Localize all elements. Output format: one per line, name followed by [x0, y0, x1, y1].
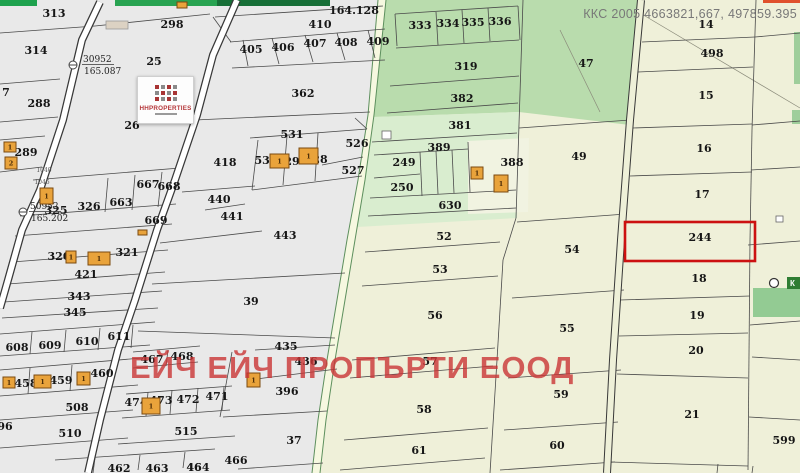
parcel-label: 531: [281, 128, 304, 141]
watermark-text: ЕЙЧ ЕЙЧ ПРОПЪРТИ ЕООД: [130, 350, 574, 386]
parcel-label: 336: [489, 15, 512, 28]
parcel-label: 526: [346, 137, 369, 150]
building-number: 1: [149, 403, 154, 411]
parcel-label: 335: [462, 16, 485, 29]
parcel-label: 443: [274, 229, 297, 242]
parcel-label: 409: [367, 35, 390, 48]
parcel-label: 334: [437, 17, 460, 30]
parcel-label: 321: [116, 246, 139, 259]
parcel-label: 58: [416, 403, 432, 416]
parcel-label: 396: [276, 385, 299, 398]
building-icon: [138, 230, 147, 235]
parcel-label: 667: [137, 178, 160, 191]
parcel-label: 408: [335, 36, 358, 49]
zone-patch: [753, 288, 800, 317]
road-label: 1040: [36, 167, 51, 174]
building-number: 1: [40, 378, 45, 386]
parcel-label: 53: [432, 263, 447, 276]
parcel-label: 389: [428, 141, 451, 154]
parcel-label: 39: [243, 295, 258, 308]
point-marker-icon: [770, 279, 779, 288]
parcel-label: 406: [272, 41, 295, 54]
parcel-label: 441: [221, 210, 244, 223]
parcel-label: 37: [286, 434, 301, 447]
building-number: 1: [81, 375, 86, 383]
road-label: 1046: [34, 179, 49, 186]
survey-point-number: 30952: [83, 55, 112, 65]
parcel-label: 418: [214, 156, 237, 169]
parcel-label: 343: [68, 290, 91, 303]
parcel-label: 47: [578, 57, 593, 70]
logo-subtitle-bar: [155, 113, 177, 115]
parcel-label: 362: [292, 87, 315, 100]
building-number: 1: [499, 180, 504, 188]
parcel-label: 249: [393, 156, 416, 169]
parcel-label: 17: [694, 188, 709, 201]
parcel-label: 20: [688, 344, 704, 357]
parcel-label: 471: [206, 390, 229, 403]
survey-point-elevation: 165.087: [84, 67, 121, 77]
parcel-label: 56: [427, 309, 443, 322]
logo-box: HHPROPERTIES: [137, 76, 194, 124]
parcel-label: 59: [553, 388, 568, 401]
parcel-label: 21: [684, 408, 699, 421]
parcel-label: 55: [559, 322, 574, 335]
parcel-label: 510: [59, 427, 82, 440]
parcel-label: 405: [240, 43, 263, 56]
parcel-label: 498: [701, 47, 724, 60]
parcel-label-244: 244: [689, 231, 712, 244]
parcel-label: 19: [689, 309, 704, 322]
parcel-label: 46: [186, 461, 202, 473]
parcel-label: 61: [411, 444, 426, 457]
parcel-label: 472: [177, 393, 200, 406]
zone-patch: [0, 0, 37, 6]
parcel-label: 608: [6, 341, 29, 354]
parcel-label: 508: [66, 401, 89, 414]
parcel-label: 25: [146, 55, 161, 68]
survey-point-elevation: 165.202: [31, 214, 68, 224]
building-icon: [177, 2, 187, 8]
parcel-label: 288: [28, 97, 51, 110]
parcel-label: 421: [75, 268, 98, 281]
parcel-label: 463: [146, 462, 169, 473]
parcel-label: 407: [304, 37, 327, 50]
parcel-label: 96: [0, 420, 13, 433]
parcel-label: 515: [175, 425, 198, 438]
parcel-label: 319: [455, 60, 478, 73]
parcel-label: 630: [439, 199, 462, 212]
building-number: 1: [277, 158, 282, 166]
map-symbol-box: [382, 131, 391, 139]
parcel-label: 18: [691, 272, 707, 285]
parcel-label: 54: [564, 243, 580, 256]
parcel-label: 15: [698, 89, 713, 102]
building-number: 1: [97, 255, 102, 263]
cadastral-map[interactable]: 31331429825288726289164.1284104054064074…: [0, 0, 800, 473]
parcel-label: 460: [91, 367, 114, 380]
parcel-label: 60: [549, 439, 565, 452]
building-number: 2: [9, 160, 14, 168]
parcel-label: 669: [145, 214, 168, 227]
parcel-label: 466: [225, 454, 248, 467]
logo-building-icon: [154, 85, 178, 105]
logo-title: HHPROPERTIES: [139, 106, 191, 112]
parcel-label: 345: [64, 306, 87, 319]
building-number: 1: [69, 254, 74, 262]
parcel-label: 7: [2, 86, 10, 99]
map-symbol-box: [776, 216, 783, 222]
parcel-label: 440: [208, 193, 231, 206]
parcel-label: 298: [161, 18, 184, 31]
zone-patch: [794, 32, 800, 84]
parcel-label: 388: [501, 156, 524, 169]
parcel-label: 289: [15, 146, 38, 159]
building-footprint: [106, 21, 128, 29]
parcel-label: 382: [451, 92, 474, 105]
zone-patch: [763, 0, 800, 3]
map-canvas: 31331429825288726289164.1284104054064074…: [0, 0, 800, 473]
parcel-label: 599: [773, 434, 796, 447]
parcel-label: 668: [158, 180, 181, 193]
building-number: 1: [7, 379, 12, 387]
parcel-label: 52: [436, 230, 451, 243]
parcel-label: 313: [43, 7, 66, 20]
parcel-label: 527: [342, 164, 365, 177]
building-number: 1: [475, 170, 480, 178]
parcel-label: 609: [39, 339, 62, 352]
zone-patch: [115, 0, 217, 6]
building-number: 1: [44, 193, 49, 201]
parcel-label: 611: [108, 330, 131, 343]
parcel-label: 410: [309, 18, 332, 31]
parcel-label: 326: [78, 200, 101, 213]
parcel-label: 610: [76, 335, 99, 348]
parcel-label: 333: [409, 19, 432, 32]
parcel-label: 462: [108, 462, 131, 473]
parcel-label: 663: [110, 196, 133, 209]
coordinate-readout: ККС 2005 4663821,667, 497859.395: [583, 7, 797, 21]
parcel-label: 250: [391, 181, 414, 194]
building-number: 1: [306, 153, 311, 161]
parcel-label: 381: [449, 119, 472, 132]
parcel-label: 314: [25, 44, 48, 57]
parcel-label: 164.128: [329, 4, 379, 17]
parcel-label: 49: [571, 150, 586, 163]
label-chip-text: К: [790, 279, 795, 288]
building-number: 1: [8, 144, 13, 152]
parcel-label: 459: [50, 374, 73, 387]
parcel-label: 16: [696, 142, 712, 155]
